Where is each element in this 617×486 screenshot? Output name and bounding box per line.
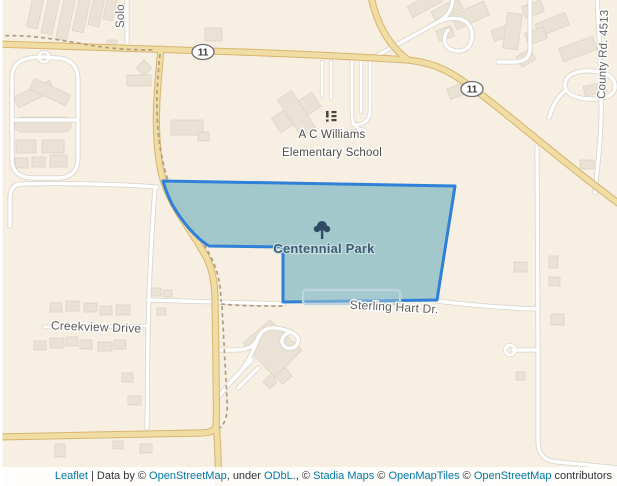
map-window: 11 11 Solo County Rd. 4513 Creekview Dri… [0,0,617,486]
attribution-text: , © [296,470,313,482]
odbl-link[interactable]: ODbL. [264,470,296,482]
svg-text:11: 11 [467,85,478,96]
attribution-bar: Leaflet | Data by © OpenStreetMap, under… [0,467,617,486]
route-shield-west: 11 [192,45,214,60]
attribution-text: contributors [551,470,612,482]
openmaptiles-link[interactable]: OpenMapTiles [388,470,459,482]
osm-link-1[interactable]: OpenStreetMap [149,470,227,482]
attribution-text: © [374,470,388,482]
attribution-text: | Data by © [88,470,149,482]
attribution-text: , under [227,470,264,482]
school-label-line1: A C Williams [299,129,366,141]
svg-text:11: 11 [198,48,209,59]
window-edge [0,0,3,486]
school-label-line2: Elementary School [282,147,382,159]
street-label-solo: Solo [115,4,127,28]
route-shield-east: 11 [461,82,483,97]
map-canvas[interactable]: 11 11 Solo County Rd. 4513 Creekview Dri… [0,0,617,486]
park-label: Centennial Park [273,241,375,256]
leaflet-link[interactable]: Leaflet [55,470,88,482]
osm-link-2[interactable]: OpenStreetMap [474,470,552,482]
stadia-maps-link[interactable]: Stadia Maps [313,470,374,482]
attribution-text: © [460,470,474,482]
